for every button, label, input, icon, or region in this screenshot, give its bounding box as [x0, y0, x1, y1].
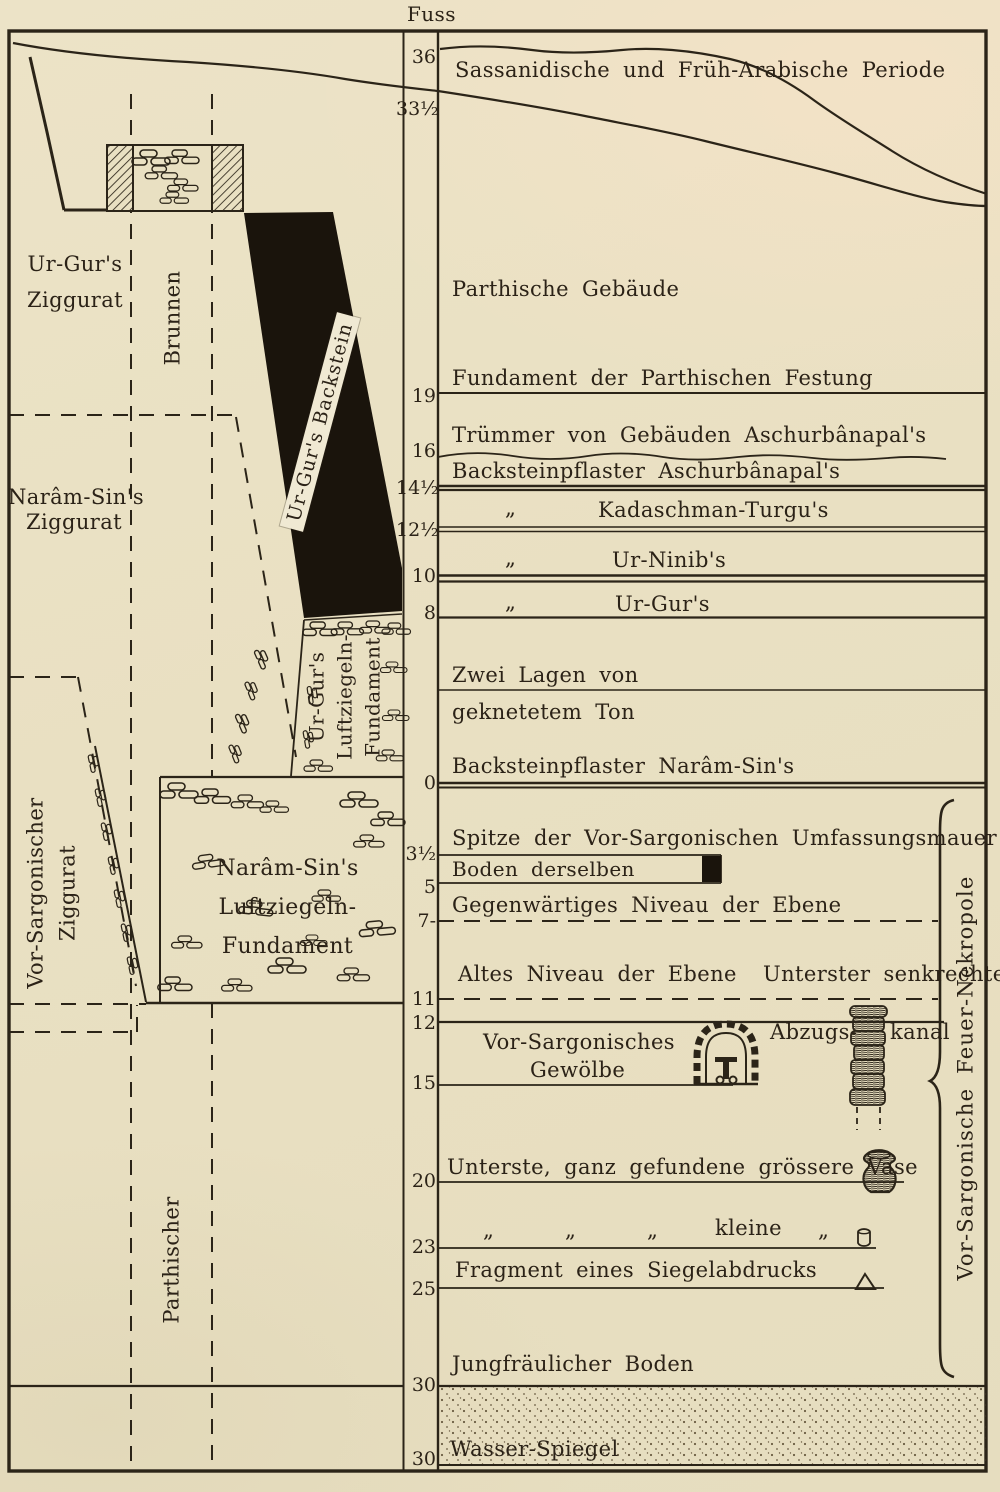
label-line: Ur-Gur's [20, 252, 130, 277]
ditto-mark: „ [565, 1218, 576, 1243]
ditto-mark: „ [483, 1218, 494, 1243]
nekropole-brace [930, 800, 954, 1377]
scale-tick: 7- [396, 909, 436, 933]
label-ur-gur-pavement: Ur-Gur's [615, 592, 710, 617]
label-abzugs: Abzugs- [770, 1020, 857, 1045]
label-gegenwaertiges-niveau: Gegenwärtiges Niveau der Ebene [452, 893, 841, 918]
label-truemmer: Trümmer von Gebäuden Aschurbânapal's [452, 423, 926, 448]
label-kadaschman-turgu: Kadaschman-Turgu's [598, 498, 829, 523]
scale-tick: 12 [396, 1011, 436, 1035]
scale-tick: 19 [396, 384, 436, 408]
scale-tick: 3½ [396, 842, 436, 866]
label-line: Ziggurat [20, 288, 130, 313]
label-line: Fundament [180, 934, 395, 959]
scale-tick: 30 [396, 1373, 436, 1397]
scale-tick: 5 [396, 875, 436, 899]
label-spitze-umfassungsmauer: Spitze der Vor-Sargonischen Umfassungsma… [452, 826, 997, 851]
label-altes-niveau: Altes Niveau der Ebene [458, 962, 737, 987]
stratigraphy-figure: Fuss 36 33½ 19 16 14½ 12½ 10 8 0 3½ 5 7-… [0, 0, 1000, 1492]
label-ur-gur-fundament-line: Luftziegeln- [333, 634, 358, 760]
label-feuer-nekropole: Vor-Sargonische Feuer-Nekropole [954, 875, 979, 1280]
scale-tick: 16 [396, 439, 436, 463]
scale-tick: 0 [396, 771, 436, 795]
ditto-mark: „ [818, 1218, 829, 1243]
label-ur-gur-fundament-line: Fundament [361, 637, 386, 757]
figure-frame [9, 31, 986, 1471]
label-fragment-siegelabdruck: Fragment eines Siegelabdrucks [455, 1258, 817, 1283]
scale-tick: 11 [396, 987, 436, 1011]
scale-tick: 8 [396, 601, 436, 625]
label-wasser-spiegel: Wasser-Spiegel [450, 1437, 619, 1462]
vault-drawing [694, 1024, 758, 1084]
well-head [107, 145, 243, 211]
scale-tick: 14½ [396, 476, 436, 500]
label-line: Narâm-Sin's [180, 856, 395, 881]
label-ur-ninib: Ur-Ninib's [612, 548, 726, 573]
label-zwei-lagen: Zwei Lagen von [452, 663, 639, 688]
label-line: Narâm-Sin's [8, 485, 140, 510]
label-backstein-naram-sin: Backsteinpflaster Narâm-Sin's [452, 754, 794, 779]
seal-fragment-triangle [856, 1274, 875, 1289]
label-geknetetem-ton: geknetetem Ton [452, 700, 635, 725]
scale-unit-label: Fuss [407, 2, 456, 27]
scale-tick: 23 [396, 1235, 436, 1259]
label-vor-sargonisches: Vor-Sargonisches [483, 1030, 675, 1055]
vor-sargonic-slope [88, 746, 146, 1002]
ditto-mark: „ [505, 546, 516, 571]
label-grosse-vase: Unterste, ganz gefundene grössere Vase [447, 1155, 918, 1180]
scale-tick: 20 [396, 1169, 436, 1193]
ditto-mark: „ [505, 496, 516, 521]
label-line: Luftziegeln- [180, 895, 395, 920]
label-vor-sargonischer-ziggurat-line: Ziggurat [56, 845, 81, 941]
label-naram-sin-ziggurat: Narâm-Sin's Ziggurat [8, 485, 140, 535]
scale-tick: 33½ [396, 97, 436, 121]
stratum-lines [9, 393, 986, 1465]
label-gewoelbe: Gewölbe [530, 1058, 625, 1083]
label-jungfraeulicher-boden: Jungfräulicher Boden [452, 1352, 694, 1377]
label-brunnen: Brunnen [161, 271, 186, 366]
ditto-mark: „ [647, 1218, 658, 1243]
label-kleine: kleine [715, 1216, 782, 1241]
scale-tick: 36 [396, 45, 436, 69]
label-parthischer: Parthischer [160, 1196, 185, 1323]
label-vor-sargonischer-ziggurat-line: Vor-Sargonischer [24, 797, 49, 988]
label-naram-sin-fundament: Narâm-Sin's Luftziegeln- Fundament [180, 856, 395, 959]
label-backstein-aschurbanapal: Backsteinpflaster Aschurbânapal's [452, 459, 840, 484]
label-ur-gur-fundament-line: Ur-Gur's [305, 652, 330, 743]
small-vase-drawing [858, 1229, 870, 1246]
label-line: Ziggurat [8, 510, 140, 535]
scale-tick: 10 [396, 564, 436, 588]
scale-tick: 12½ [396, 518, 436, 542]
scale-tick: 15 [396, 1071, 436, 1095]
label-sassanidische-periode: Sassanidische und Früh-Arabische Periode [455, 58, 945, 83]
label-kanal: kanal [890, 1020, 950, 1045]
scale-tick: 30 [396, 1447, 436, 1471]
label-ur-gur-ziggurat: Ur-Gur's Ziggurat [20, 252, 130, 313]
label-fundament-festung: Fundament der Parthischen Festung [452, 366, 873, 391]
label-boden-derselben: Boden derselben [452, 857, 635, 882]
label-parthische-gebaeude: Parthische Gebäude [452, 277, 679, 302]
ditto-mark: „ [505, 590, 516, 615]
scale-tick: 25 [396, 1277, 436, 1301]
